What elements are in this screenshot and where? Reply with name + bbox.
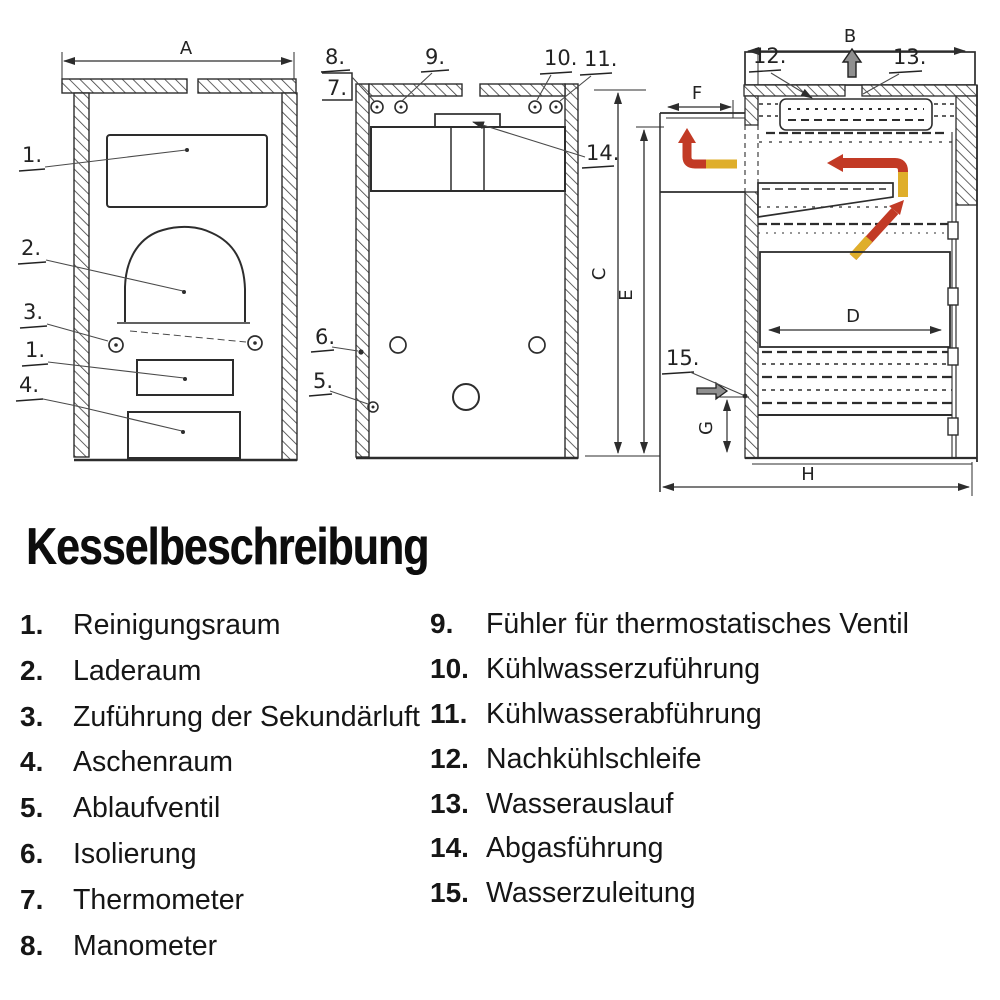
legend-item-number: 3. [20, 694, 73, 740]
callout-10: 10. [544, 46, 577, 70]
loading-door-arch [125, 227, 245, 322]
legend-item-label: Abgasführung [486, 832, 663, 864]
front-top-wall [62, 79, 187, 93]
loading-chamber [760, 252, 950, 347]
rear-port-right [529, 337, 545, 353]
smoke-baffle [758, 183, 893, 217]
legend-item: 3.Zuführung der Sekundärluft [20, 694, 420, 740]
legend-item-number: 13. [430, 782, 486, 827]
dim-a-label: A [180, 38, 193, 59]
callout-14: 14. [586, 141, 619, 165]
legend-item-label: Aschenraum [73, 746, 233, 778]
legend-item-label: Kühlwasserabführung [486, 698, 762, 730]
callout-3: 3. [23, 300, 43, 324]
boiler-diagram: A 1. 2. 3. 1. 4. [0, 0, 1000, 505]
callout-4: 4. [19, 373, 39, 397]
rear-port-left [390, 337, 406, 353]
dim-e-label: E [616, 289, 637, 300]
legend-right-column: 9.Fühler für thermostatisches Ventil 10.… [430, 602, 909, 916]
callout-1b: 1. [25, 338, 45, 362]
legend-item: 2.Laderaum [20, 648, 420, 694]
callout-5: 5. [313, 369, 333, 393]
legend-item-number: 12. [430, 737, 486, 782]
legend-item-label: Manometer [73, 930, 217, 962]
legend-item-label: Zuführung der Sekundärluft [73, 701, 420, 733]
callout-11: 11. [584, 47, 617, 71]
flue-gas-arrow [843, 49, 861, 77]
dim-b-label: B [844, 26, 856, 47]
ash-door [128, 412, 240, 458]
legend-item: 1.Reinigungsraum [20, 602, 420, 648]
legend-item: 7.Thermometer [20, 877, 420, 923]
callout-1: 1. [22, 143, 42, 167]
front-view: A 1. 2. 3. 1. 4. [16, 38, 297, 460]
legend-item-label: Laderaum [73, 655, 201, 687]
side-right-wall [956, 96, 977, 205]
front-right-wall [282, 93, 297, 460]
rear-port-big [453, 384, 479, 410]
after-cooling-loop [780, 99, 932, 130]
legend-left-column: 1.Reinigungsraum 2.Laderaum 3.Zuführung … [20, 602, 420, 968]
legend-item-number: 9. [430, 602, 486, 647]
side-view: B F [660, 26, 977, 496]
legend-item-label: Fühler für thermostatisches Ventil [486, 608, 909, 640]
legend-item-number: 7. [20, 877, 73, 923]
manual-page: A 1. 2. 3. 1. 4. [0, 0, 1000, 1000]
legend-item-number: 11. [430, 692, 486, 737]
middle-top-wall [369, 84, 462, 96]
dim-h-label: H [801, 464, 815, 485]
callout-7: 7. [327, 76, 347, 100]
legend-item: 15.Wasserzuleitung [430, 871, 909, 916]
legend-item-number: 6. [20, 831, 73, 877]
callout-8: 8. [325, 45, 345, 69]
legend-item-label: Ablaufventil [73, 792, 220, 824]
legend-item-label: Thermometer [73, 884, 244, 916]
legend-item: 5.Ablaufventil [20, 785, 420, 831]
legend-item: 12.Nachkühlschleife [430, 737, 909, 782]
flue-outlet-box [435, 114, 500, 127]
callout-13: 13. [893, 45, 926, 69]
legend-item-number: 14. [430, 826, 486, 871]
legend-item: 9.Fühler für thermostatisches Ventil [430, 602, 909, 647]
legend-item: 8.Manometer [20, 923, 420, 969]
callout-15: 15. [666, 346, 699, 370]
legend-item-label: Reinigungsraum [73, 609, 281, 641]
page-title: Kesselbeschreibung [26, 517, 428, 577]
legend-item-number: 5. [20, 785, 73, 831]
cleaning-door [107, 135, 267, 207]
dim-f-label: F [692, 83, 702, 104]
legend-item-label: Wasserzuleitung [486, 877, 696, 909]
legend-item: 14.Abgasführung [430, 826, 909, 871]
legend-item: 6.Isolierung [20, 831, 420, 877]
callout-9: 9. [425, 45, 445, 69]
legend-item-number: 1. [20, 602, 73, 648]
legend-item: 10.Kühlwasserzuführung [430, 647, 909, 692]
callout-12: 12. [753, 44, 786, 68]
legend-item-number: 10. [430, 647, 486, 692]
legend-item-label: Kühlwasserzuführung [486, 653, 760, 685]
legend-item-label: Isolierung [73, 838, 197, 870]
legend-item: 13.Wasserauslauf [430, 782, 909, 827]
front-left-wall [74, 93, 89, 457]
legend-item-number: 15. [430, 871, 486, 916]
dim-d-label: D [846, 306, 860, 327]
dim-g-label: G [696, 421, 717, 435]
legend-item-number: 2. [20, 648, 73, 694]
middle-view: 8. 7. 9. 10. 11. 14. 6. 5. C E [309, 45, 664, 458]
legend-item-label: Nachkühlschleife [486, 743, 701, 775]
legend-item-label: Wasserauslauf [486, 788, 673, 820]
middle-right-wall [565, 84, 578, 458]
rear-chamber [371, 127, 565, 191]
callout-6: 6. [315, 325, 335, 349]
dim-c-label: C [589, 268, 610, 281]
callout-2: 2. [21, 236, 41, 260]
legend-item: 11.Kühlwasserabführung [430, 692, 909, 737]
legend-item-number: 4. [20, 739, 73, 785]
legend-item: 4.Aschenraum [20, 739, 420, 785]
legend-item-number: 8. [20, 923, 73, 969]
